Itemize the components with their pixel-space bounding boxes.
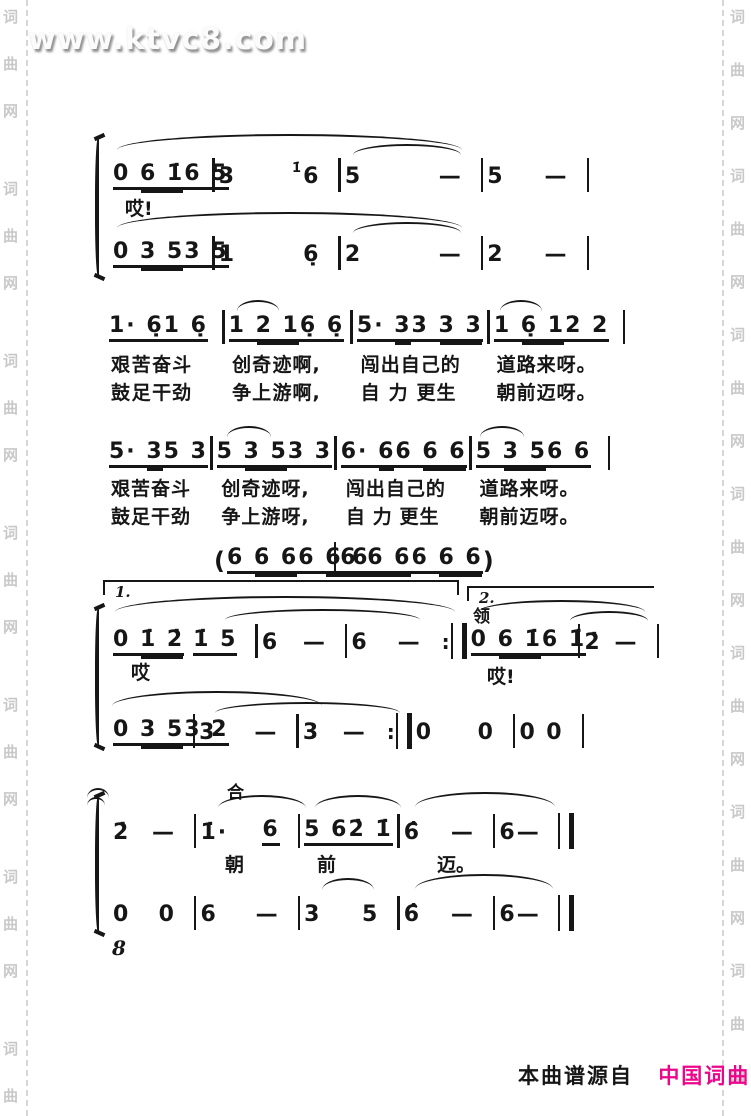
note-cluster: 0 6 1̇ <box>113 161 184 190</box>
lyric-syllable: 迹啊, <box>272 350 320 377</box>
measure: 00 <box>515 720 581 746</box>
note-cluster: 1̇6 <box>294 162 320 190</box>
measure: 5 3 56 6 <box>472 439 608 468</box>
lyric-syllable: 自己的 <box>401 350 461 377</box>
note-group: 2 <box>487 242 504 268</box>
right-side-watermark: 词曲网词曲网词曲网词曲网词曲网词曲网词曲网 <box>730 0 750 1116</box>
note-cluster: 6 <box>351 630 368 656</box>
lyric-measure: 艰苦奋斗 <box>105 350 226 377</box>
side-watermark-char: 词 <box>3 522 18 543</box>
note-group: 1 <box>229 313 256 342</box>
note-cluster: — <box>254 720 278 746</box>
lyric-syllable: 艰 <box>111 474 131 501</box>
note-group: 6 <box>298 545 325 574</box>
note-group: — <box>451 902 475 928</box>
note-group: 5 <box>487 164 504 190</box>
note-cluster: 1· 6̣ <box>109 313 164 342</box>
note-group: 6 <box>227 545 254 574</box>
note-group: 6 6 <box>254 545 298 574</box>
lyric-syllable: 出 <box>381 350 401 377</box>
note-group: — <box>152 820 176 846</box>
note-group: 0 <box>159 902 176 928</box>
side-watermark-char: 词 <box>730 165 745 186</box>
grace-note: 1̇ <box>292 162 301 175</box>
measure: 31̇6 <box>215 162 339 190</box>
note-group: 5 <box>362 902 379 928</box>
measure: 16̣ <box>215 242 339 268</box>
bar-line <box>587 158 590 192</box>
note-group: 6 <box>200 902 217 928</box>
note-cluster: 2 <box>487 242 504 268</box>
lyric-syllable: 自 <box>346 502 366 529</box>
lyric-measure: 艰苦奋斗 <box>105 474 215 501</box>
note-cluster: 1 2 1 <box>229 313 300 342</box>
note-group: — <box>303 630 327 656</box>
lyrics-row-2: 鼓足干劲争上游呀,自力更生朝前迈呀。 <box>105 502 610 529</box>
lyric-syllable: 朝前 <box>497 378 537 405</box>
note-group: 6 <box>351 630 368 656</box>
side-watermark-char: 网 <box>3 616 18 637</box>
lyric-syllable: 创奇 <box>232 350 272 377</box>
measure: 3— <box>195 720 296 746</box>
lyric-measure: 道路来呀。 <box>491 350 625 377</box>
note-group: — <box>545 242 569 268</box>
measure: 6̂— <box>400 820 493 846</box>
note-group: 6̣ <box>303 242 320 268</box>
lyric-ai: 哎 <box>131 658 150 685</box>
measure: 35 <box>300 902 397 928</box>
sheet-music-page: www.ktvc8.com 词曲网词曲网词曲网词曲网词曲网词曲网词曲网 词曲网词… <box>0 0 751 1116</box>
slur-arc <box>322 878 374 890</box>
note-cluster: 0 <box>159 902 176 928</box>
lyric-measure: 创奇迹啊, <box>226 350 355 377</box>
note-group: 6· <box>341 439 378 468</box>
lyric-syllable: 道路 <box>480 474 520 501</box>
note-cluster: 2 <box>345 242 362 268</box>
side-watermark-char: 曲 <box>3 741 18 762</box>
side-watermark-char: 曲 <box>3 569 18 590</box>
lyric-syllable: 争上 <box>232 378 272 405</box>
note-group: — <box>615 630 639 656</box>
lyric-syllable: 更生 <box>417 378 457 405</box>
note-cluster: ) <box>483 548 496 574</box>
note-group: 6 <box>499 820 516 846</box>
lyric-measure: 创奇迹呀, <box>215 474 339 501</box>
side-watermark-char: 词 <box>3 694 18 715</box>
system-4: 1. 2. 领 0 1̇ 2̇1̇ 56—6—:0 6 1̇6 1̇2̇— 哎 … <box>95 578 695 768</box>
side-watermark-char: 曲 <box>730 536 745 557</box>
note-cluster: 1̇· <box>200 820 228 846</box>
measure: 1· 6̣1 6̣ <box>105 313 222 342</box>
note-cluster: 3 <box>303 720 320 746</box>
note-group: 3 <box>303 720 320 746</box>
note-group: 6 6 <box>367 545 411 574</box>
note-group: 6̣ 1 <box>521 313 565 342</box>
lyric-syllable: 奋斗 <box>151 474 191 501</box>
note-cluster: 6 6 6 <box>340 545 411 574</box>
note-group: — <box>439 164 463 190</box>
note-group: 6 <box>303 164 320 190</box>
side-watermark-char: 网 <box>730 907 745 928</box>
first-ending-bracket: 1. <box>103 580 459 595</box>
note-group: 6 1̇ <box>498 627 542 656</box>
note-group: ( <box>214 548 227 574</box>
lyric-measure: 争上游啊, <box>226 378 355 405</box>
note-group: — <box>517 820 541 846</box>
lyric-mai: 迈。 <box>437 850 475 877</box>
measure: 2— <box>341 242 481 268</box>
note-cluster: 5 <box>345 164 362 190</box>
lyric-syllable: 鼓 <box>111 502 131 529</box>
side-watermark-char: 网 <box>3 788 18 809</box>
note-group: 3 5 <box>140 717 184 746</box>
note-cluster: 0 <box>546 720 563 746</box>
note-group: 2 2 <box>565 313 609 342</box>
final-bar-line <box>558 895 574 931</box>
notes-line-voice2: 0 3 53 23—3—:0000 <box>109 710 584 746</box>
slur-arc <box>478 600 645 612</box>
side-watermark-char: 曲 <box>3 397 18 418</box>
note-cluster: — <box>343 720 367 746</box>
side-watermark-char: 曲 <box>730 377 745 398</box>
system-5: 合 2̇—1̇·65 62̇ 1̇6̂—6— 朝 前 迈。 006—356̂—6… <box>95 780 695 940</box>
note-group: 5 <box>345 164 362 190</box>
note-cluster: — <box>517 820 541 846</box>
note-group: 5· <box>109 439 146 468</box>
lyric-measure: 朝前迈呀。 <box>491 378 625 405</box>
bar-line <box>608 436 611 470</box>
note-group: 5 6 <box>304 817 348 846</box>
side-watermark-char: 曲 <box>730 218 745 239</box>
side-watermark-char: 曲 <box>730 59 745 80</box>
note-cluster: 3 3 <box>288 439 332 468</box>
side-watermark-char: 网 <box>3 100 18 121</box>
notes-line: 1· 6̣1 6̣1 2 16̣ 6̣5· 33 3 31 6̣ 12 2 <box>105 306 625 342</box>
note-cluster: 1 <box>219 242 236 268</box>
note-cluster: 6 6 6 <box>227 545 298 574</box>
note-group: 0 <box>416 720 433 746</box>
lyric-measure: 鼓足干劲 <box>105 378 226 405</box>
note-group: — <box>398 630 422 656</box>
measure: 6— <box>347 630 439 656</box>
note-cluster: — <box>303 630 327 656</box>
note-cluster: 3 3 3 <box>412 313 483 342</box>
lyric-syllable: 苦 <box>132 350 152 377</box>
note-cluster: — <box>517 902 541 928</box>
note-cluster: — <box>615 630 639 656</box>
note-group: 0 <box>113 161 140 190</box>
note-cluster: 6 <box>262 817 279 846</box>
note-cluster: 5 <box>487 164 504 190</box>
note-cluster: 0 3 5 <box>113 239 184 268</box>
slur-arc <box>315 795 401 808</box>
footer-brand-name: 中国词曲网 <box>658 1064 751 1088</box>
measure: 6— <box>495 902 558 928</box>
note-cluster: 6̣ <box>303 242 320 268</box>
note-group: 1 <box>219 242 236 268</box>
measure: 5 3 53 3 <box>213 439 335 468</box>
tie-arc <box>415 792 555 807</box>
lyric-chao: 朝 <box>225 850 244 877</box>
lyric-syllable: 闯 <box>361 350 381 377</box>
lyric-syllable: 迹呀, <box>261 474 309 501</box>
note-group: 6 <box>262 630 279 656</box>
note-cluster: 6 6 6 <box>395 439 466 468</box>
lyric-syllable: 来呀。 <box>520 474 580 501</box>
system-2: 1· 6̣1 6̣1 2 16̣ 6̣5· 33 3 31 6̣ 12 2 艰苦… <box>95 298 695 418</box>
lyric-syllable: 奋斗 <box>152 350 192 377</box>
note-cluster: 0 <box>113 902 130 928</box>
note-cluster: 2̇ <box>113 820 130 846</box>
measure: 6 6 66 6 6) <box>336 545 460 574</box>
note-group: 3 <box>412 313 439 342</box>
note-group: 6 <box>262 817 279 846</box>
note-group: 3 5 <box>503 439 547 468</box>
note-cluster: 6 <box>200 902 217 928</box>
side-watermark-char: 网 <box>3 444 18 465</box>
note-cluster: 5 3 <box>164 439 208 468</box>
side-watermark-char: 词 <box>730 642 745 663</box>
note-group: 0 <box>546 720 563 746</box>
note-group: 0 <box>113 717 140 746</box>
lyric-syllable: 干劲 <box>152 378 192 405</box>
bar-line <box>657 624 660 658</box>
footer-source-prefix: 本曲谱源自 <box>518 1064 633 1088</box>
system-3: 5· 35 35 3 53 36· 66 6 65 3 56 6 艰苦奋斗创奇迹… <box>95 420 695 540</box>
note-group: 2 1 <box>256 313 300 342</box>
side-watermark-char: 曲 <box>3 1085 18 1106</box>
lyric-syllable: 道路 <box>497 350 537 377</box>
note-group: 6 <box>378 439 395 468</box>
note-cluster: 0 3 5 <box>113 717 184 746</box>
measure: 1 2 16̣ 6̣ <box>225 313 351 342</box>
lyric-measure: 鼓足干劲 <box>105 502 215 529</box>
note-group: 0 <box>471 627 498 656</box>
note-group: 0 <box>113 902 130 928</box>
site-watermark: www.ktvc8.com <box>28 22 307 57</box>
measure: 0 3 53 5 <box>109 239 212 268</box>
notes-line: 5· 35 35 3 53 36· 66 6 65 3 56 6 <box>105 432 610 468</box>
note-cluster: — <box>152 820 176 846</box>
measure: 2̇— <box>580 630 656 656</box>
voice-brace <box>95 608 106 746</box>
note-cluster: 6 6 6 <box>412 545 483 574</box>
note-cluster: — <box>545 242 569 268</box>
note-cluster: — <box>439 164 463 190</box>
notes-line-voice1: 0 1̇ 2̇1̇ 56—6—:0 6 1̇6 1̇2̇— <box>109 620 659 656</box>
note-cluster: 3 <box>219 164 236 190</box>
voice-brace <box>95 138 106 276</box>
note-group: 3 <box>199 720 216 746</box>
note-cluster: 2̇ <box>584 630 601 656</box>
lyric-syllable: 迈呀。 <box>537 378 597 405</box>
notes-line-voice1: 0 6 1̇6 531̇65—5— <box>109 154 589 190</box>
note-group: 6̂ <box>404 902 421 928</box>
note-cluster: 5 <box>362 902 379 928</box>
note-group: 6 6 <box>422 439 466 468</box>
side-watermark-char: 曲 <box>3 225 18 246</box>
measure: 6— <box>495 820 558 846</box>
note-group: 3 <box>304 902 321 928</box>
left-dashed-border <box>26 0 28 1116</box>
note-cluster: 1̇ 5 <box>193 627 237 656</box>
lyric-measure: 自力更生 <box>355 378 491 405</box>
note-group: 6̂ <box>404 820 421 846</box>
note-group: 0 <box>478 720 495 746</box>
note-group: — <box>439 242 463 268</box>
note-group: — <box>517 902 541 928</box>
lyric-measure: 争上游呀, <box>215 502 339 529</box>
measure: (6 6 66 6 6 <box>210 545 334 574</box>
lyric-syllable: 艰 <box>111 350 131 377</box>
note-group: — <box>343 720 367 746</box>
right-dashed-border <box>722 0 724 1116</box>
measure: 6— <box>258 630 345 656</box>
note-group: — <box>451 820 475 846</box>
note-cluster: 0 <box>416 720 433 746</box>
side-watermark-char: 词 <box>730 324 745 345</box>
lyric-syllable: 足 <box>131 502 151 529</box>
lyric-syllable: 出 <box>366 474 386 501</box>
note-group: 6 <box>395 439 422 468</box>
measure: 5 62̇ 1̇ <box>300 817 397 846</box>
note-cluster: 6 <box>499 902 516 928</box>
note-cluster: ( <box>214 548 227 574</box>
lyrics-row-2: 鼓足干劲争上游啊,自力更生朝前迈呀。 <box>105 378 625 405</box>
note-cluster: — <box>451 820 475 846</box>
note-group: 6 <box>499 902 516 928</box>
lyric-measure: 自力更生 <box>340 502 474 529</box>
repeat-bar-line <box>451 623 467 659</box>
lyric-syllable: 创奇 <box>221 474 261 501</box>
note-cluster: 6 <box>499 820 516 846</box>
lyric-syllable: 干劲 <box>151 502 191 529</box>
lyric-syllable: 自 <box>361 378 381 405</box>
note-group: 5 3 <box>164 439 208 468</box>
side-watermark-char: 词 <box>3 178 18 199</box>
note-group: 0 <box>519 720 536 746</box>
note-cluster: 3 <box>199 720 216 746</box>
notes-line-voice2: 0 3 53 516̣2—2— <box>109 232 589 268</box>
lyrics-row-1: 艰苦奋斗创奇迹呀,闯出自己的道路来呀。 <box>105 474 610 501</box>
side-watermark-char: 网 <box>730 271 745 292</box>
note-group: 3 <box>394 313 411 342</box>
note-cluster: 6̂ <box>404 902 421 928</box>
lyric-measure: 道路来呀。 <box>474 474 610 501</box>
side-watermark-char: 词 <box>3 6 18 27</box>
lyric-syllable: 闯 <box>346 474 366 501</box>
note-group: 6 <box>340 545 367 574</box>
notes-line-voice1: 2̇—1̇·65 62̇ 1̇6̂—6— <box>109 810 574 846</box>
note-cluster: 0 <box>478 720 495 746</box>
note-group: 5 <box>217 439 244 468</box>
note-group: 2̇ <box>584 630 601 656</box>
measure: 5— <box>483 164 586 190</box>
note-group: 3 5 <box>244 439 288 468</box>
measure: 6· 66 6 6 <box>337 439 469 468</box>
note-group: 2̇ 1̇ <box>348 817 392 846</box>
lyric-syllable: 更生 <box>400 502 440 529</box>
note-group: 1 6̣ <box>164 313 208 342</box>
side-watermark-char: 网 <box>730 430 745 451</box>
note-cluster: 1 6̣ 1 <box>494 313 565 342</box>
note-group: 1̇ 5 <box>193 627 237 656</box>
measure: 6̂— <box>400 902 493 928</box>
measure: 2̇— <box>109 820 194 846</box>
final-bar-line <box>558 813 574 849</box>
side-watermark-char: 网 <box>730 589 745 610</box>
note-group: 1̇ 2̇ <box>140 627 184 656</box>
note-cluster: 2 2 <box>565 313 609 342</box>
note-group: 1̇· <box>200 820 228 846</box>
note-group: 3 <box>146 439 163 468</box>
lyric-ai: 哎! <box>125 194 153 221</box>
measure: 00 <box>109 902 194 928</box>
measure: 6— <box>196 902 297 928</box>
side-watermark-char: 词 <box>3 350 18 371</box>
lyric-ai-2: 哎! <box>487 662 515 689</box>
measure: 5— <box>341 164 481 190</box>
note-cluster: 6 6 <box>547 439 591 468</box>
note-cluster: 1 6̣ <box>164 313 208 342</box>
note-group: 0 <box>113 239 140 268</box>
side-watermark-char: 曲 <box>3 53 18 74</box>
system-1: 0 6 1̇6 531̇65—5— 哎! 0 3 53 516̣2—2— <box>95 128 695 288</box>
side-watermark-char: 词 <box>730 483 745 504</box>
note-cluster: 5· 3 <box>357 313 412 342</box>
note-cluster: 6̂ <box>404 820 421 846</box>
note-group: 6 <box>412 545 439 574</box>
side-watermark-char: 词 <box>730 801 745 822</box>
measure: 0 6 1̇6 5 <box>109 161 212 190</box>
note-group: 6̣ 6̣ <box>300 313 344 342</box>
note-group: 6 6 <box>547 439 591 468</box>
left-side-watermark: 词曲网词曲网词曲网词曲网词曲网词曲网词曲网 <box>3 0 23 1116</box>
lyric-syllable: 游啊, <box>272 378 320 405</box>
measure: 5· 35 3 <box>105 439 210 468</box>
interlude-notes-line: (6 6 66 6 66 6 66 6 6) <box>210 538 460 574</box>
lyrics-row-1: 艰苦奋斗创奇迹啊,闯出自己的道路来呀。 <box>105 350 625 377</box>
side-watermark-char: 曲 <box>730 1013 745 1034</box>
repeat-dots: : <box>387 717 395 747</box>
note-cluster: 6 <box>262 630 279 656</box>
side-watermark-char: 网 <box>730 748 745 769</box>
notes-line-voice2: 006—356̂—6— <box>109 892 574 928</box>
bar-line <box>582 714 585 748</box>
lyric-syllable: 游呀, <box>261 502 309 529</box>
note-group: 1· 6̣ <box>109 313 164 342</box>
note-group: — <box>545 164 569 190</box>
side-watermark-char: 曲 <box>730 854 745 875</box>
second-ending-bracket: 2. <box>467 586 654 601</box>
note-cluster: — <box>398 630 422 656</box>
measure: 0 3 53 2 <box>109 717 193 746</box>
repeat-bar-line <box>396 713 412 749</box>
note-group: 3 5 <box>140 239 184 268</box>
note-group: ) <box>483 548 496 574</box>
note-cluster: 0 <box>519 720 536 746</box>
note-cluster: — <box>451 902 475 928</box>
note-group: 0 <box>113 627 140 656</box>
note-group: 6 6 <box>438 545 482 574</box>
note-cluster: 5· 3 <box>109 439 164 468</box>
note-group: 3 <box>219 164 236 190</box>
lyric-syllable: 力 <box>373 502 393 529</box>
lyric-measure: 闯出自己的 <box>340 474 474 501</box>
lyric-syllable: 鼓 <box>111 378 131 405</box>
measure: 5· 33 3 3 <box>353 313 487 342</box>
side-watermark-char: 网 <box>3 272 18 293</box>
